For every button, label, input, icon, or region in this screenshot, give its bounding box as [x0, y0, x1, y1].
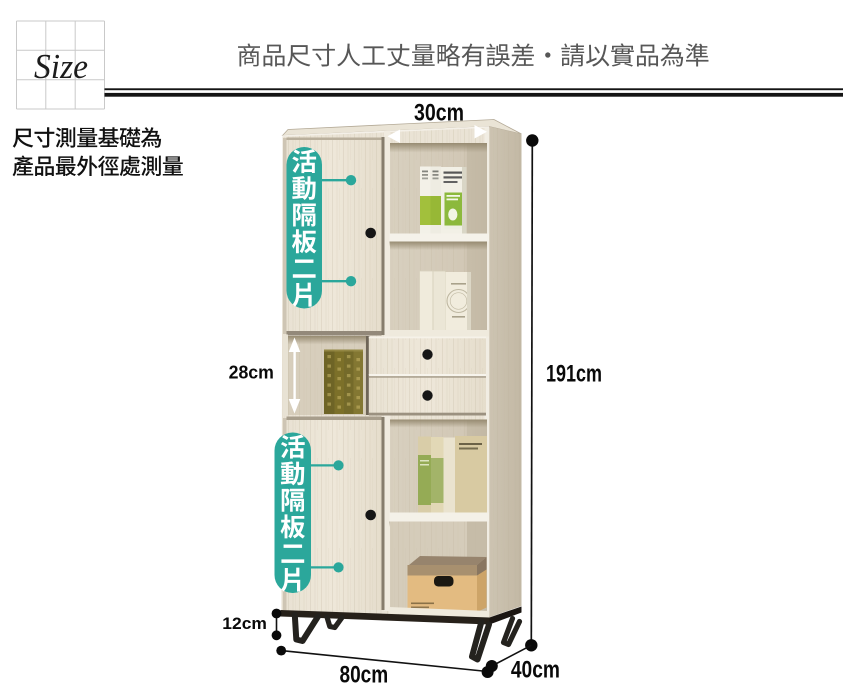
svg-text:28cm: 28cm: [229, 362, 274, 383]
svg-text:30cm: 30cm: [414, 100, 464, 127]
svg-text:Size: Size: [34, 47, 88, 86]
svg-text:80cm: 80cm: [340, 662, 389, 689]
svg-text:12cm: 12cm: [222, 614, 267, 633]
svg-text:191cm: 191cm: [546, 360, 602, 387]
svg-text:40cm: 40cm: [511, 657, 560, 684]
